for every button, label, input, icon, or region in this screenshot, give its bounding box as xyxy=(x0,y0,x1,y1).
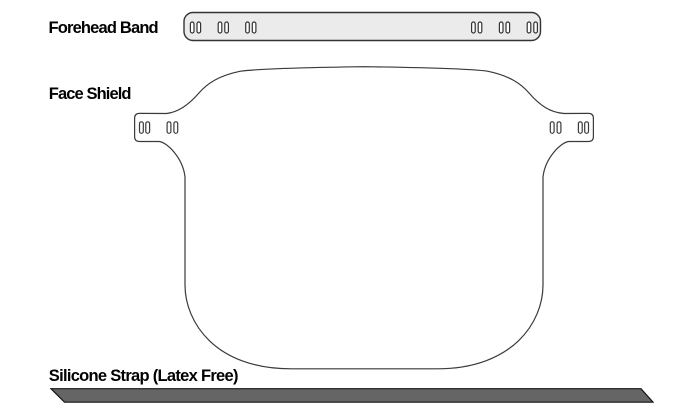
svg-text:Forehead Band: Forehead Band xyxy=(49,19,158,37)
svg-text:Face Shield: Face Shield xyxy=(49,85,131,103)
svg-text:Silicone Strap (Latex Free): Silicone Strap (Latex Free) xyxy=(49,367,238,385)
